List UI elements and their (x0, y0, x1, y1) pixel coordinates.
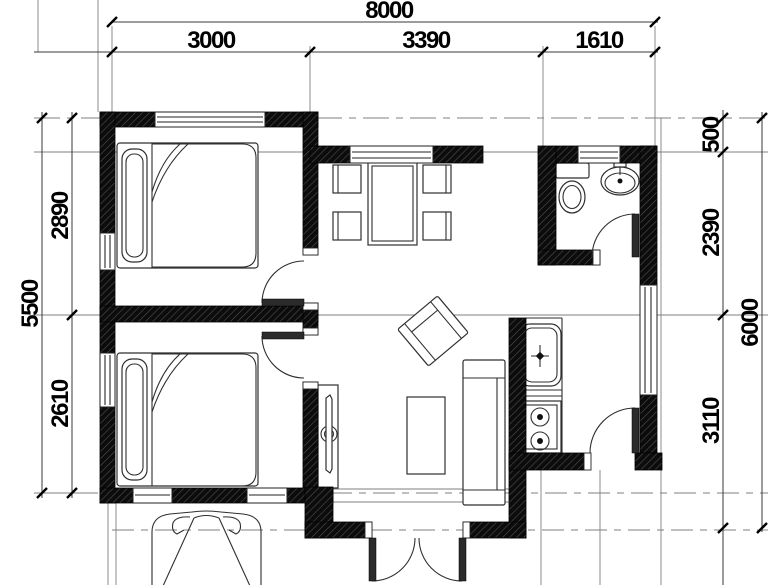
wall-segment (303, 112, 318, 255)
car-windshield-line (163, 518, 194, 585)
door-leaf (632, 214, 639, 257)
double-bed-2 (117, 353, 258, 486)
dining-chair (423, 212, 451, 240)
wall-segment (100, 488, 133, 503)
bathroom-fixtures (556, 160, 639, 213)
wall-segment (509, 453, 584, 470)
window (578, 146, 620, 163)
door-bedroom-1 (262, 248, 318, 310)
floor-plan-drawing: 8000 3000 3390 1610 5500 2890 2610 500 2… (0, 0, 777, 585)
window (155, 112, 265, 127)
window (100, 353, 115, 407)
dim-left-seg-1: 2890 (47, 191, 74, 240)
window (350, 146, 433, 163)
wall-segment (100, 306, 318, 322)
wall-segment (433, 146, 483, 163)
wall-segment (635, 453, 662, 470)
wall-segment (100, 112, 115, 233)
dim-right-seg-3: 3110 (698, 397, 725, 444)
dining-set (333, 162, 451, 245)
dim-top-seg-1: 3000 (187, 27, 236, 54)
dim-top-seg-3: 1610 (575, 27, 624, 54)
sofa (463, 360, 505, 505)
wall-segment (640, 395, 657, 453)
dim-top-seg-2: 3390 (402, 27, 451, 54)
door-kitchen (584, 408, 639, 470)
wall-segment (172, 488, 247, 503)
door-leaf (369, 538, 376, 581)
armchair (398, 296, 469, 366)
window (133, 488, 172, 503)
wall-segment (509, 318, 526, 538)
door-bedroom-2 (262, 328, 318, 389)
furniture-layer (117, 143, 639, 585)
tv-screen (326, 395, 332, 473)
wall-segment (463, 522, 526, 538)
car (152, 511, 261, 585)
dining-chair (423, 165, 451, 193)
wall-segment (640, 146, 657, 285)
car-windshield-line (219, 518, 250, 585)
wall-segment (303, 382, 318, 488)
wall-segment (305, 522, 372, 538)
washbasin (601, 160, 639, 195)
dim-left-seg-2: 2610 (47, 379, 74, 428)
wall-segment (538, 250, 600, 265)
wall-segment (538, 146, 556, 265)
coffee-table (407, 397, 445, 474)
door-leaf (262, 332, 304, 339)
toilet (556, 163, 589, 213)
door-leaf (459, 538, 466, 581)
window (640, 285, 657, 395)
window (247, 488, 287, 503)
window (100, 233, 115, 270)
wall-segment (310, 146, 350, 163)
drain-icon (618, 179, 623, 184)
dim-right-seg-2: 2390 (698, 208, 725, 257)
door-bathroom (592, 214, 639, 265)
door-entrance-double (365, 522, 470, 581)
dining-chair (333, 212, 361, 240)
wall-segment (556, 146, 578, 163)
dim-left-total: 5500 (17, 279, 44, 328)
double-bed-1 (117, 143, 258, 268)
dim-right-seg-1: 500 (698, 116, 725, 153)
door-leaf (262, 299, 304, 306)
tv-cabinet (318, 385, 338, 488)
dining-chair (333, 165, 361, 193)
floor-plan-page: 8000 3000 3390 1610 5500 2890 2610 500 2… (0, 0, 777, 585)
dim-top-total: 8000 (365, 0, 414, 24)
dining-table (368, 162, 417, 245)
dim-right-total: 6000 (737, 298, 764, 347)
door-leaf (632, 408, 639, 453)
